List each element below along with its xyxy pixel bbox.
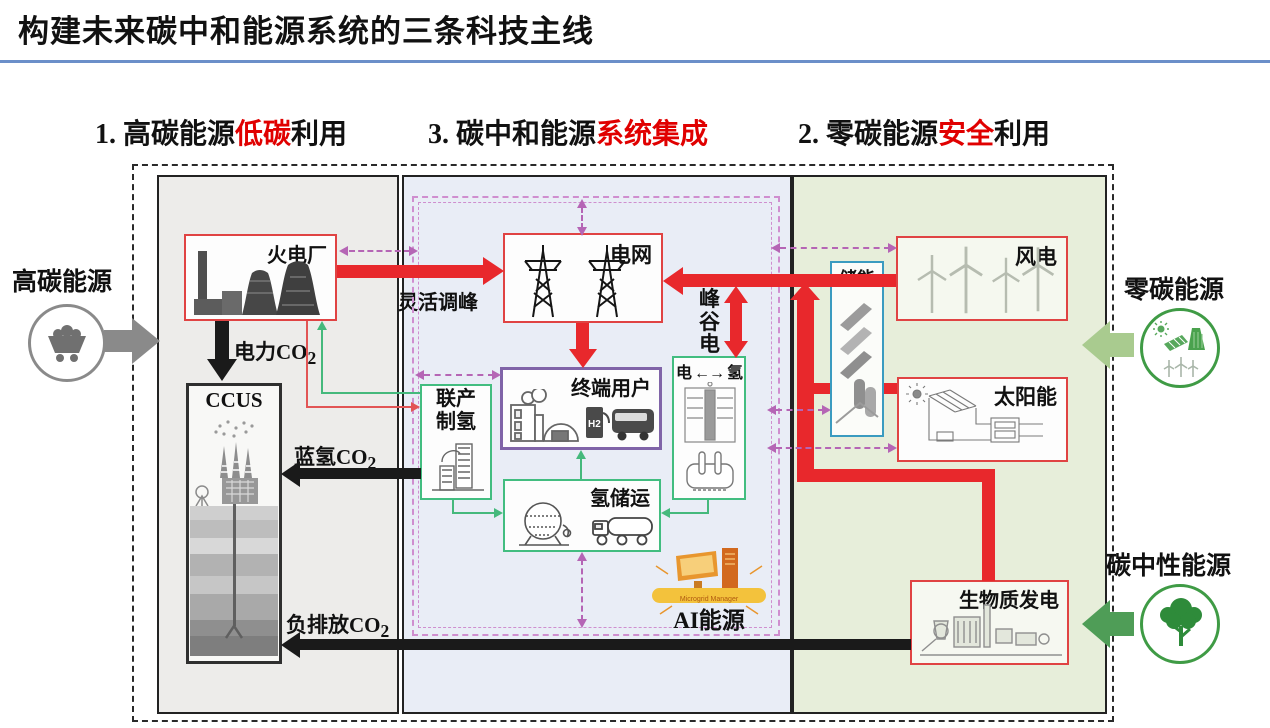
elech2-to-h2stor-line-h — [669, 512, 709, 514]
coal-cart-icon — [44, 322, 92, 364]
header-high-carbon: 1. 高碳能源低碳利用 — [95, 112, 347, 152]
h2-storage-icons — [509, 499, 659, 547]
ai-to-h2stor-dashed — [581, 559, 583, 621]
grid-to-enduser-arrow-shaft — [576, 323, 589, 351]
negative-co2-text: 负排放CO — [286, 613, 381, 637]
carbon-neutral-circle — [1140, 584, 1220, 664]
ai-to-storage-dashed — [776, 409, 824, 411]
ai-to-grid-head-down — [577, 227, 587, 236]
h2-pump-text: H2 — [588, 419, 601, 430]
biomass-riser-vertical — [982, 469, 995, 581]
biomass-box: 生物质发电 — [910, 580, 1069, 665]
title-rule — [0, 60, 1270, 63]
grid-to-enduser-arrow-head — [569, 349, 597, 368]
header-1-highlight: 低碳 — [235, 119, 291, 150]
power-co2-text: 电力CO — [234, 340, 308, 364]
elec-h2-box: 电 ←→ 氢 — [672, 356, 746, 500]
ai-to-wind-dashed — [780, 247, 890, 249]
h2stor-to-enduser-head — [576, 450, 586, 459]
blue-h2-co2-text: 蓝氢CO — [294, 445, 368, 469]
h2prod-to-h2stor-head — [494, 508, 503, 518]
page-title: 构建未来碳中和能源系统的三条科技主线 — [18, 6, 594, 51]
header-integration: 3. 碳中和能源系统集成 — [428, 112, 708, 152]
ai-to-storage-head-left — [767, 405, 776, 415]
negative-co2-arrow-shaft — [299, 639, 911, 650]
thermal-to-h2prod-head — [411, 402, 420, 412]
slide: 构建未来碳中和能源系统的三条科技主线 1. 高碳能源低碳利用 3. 碳中和能源系… — [0, 0, 1270, 728]
ai-to-solar-dashed — [776, 447, 890, 449]
ai-to-thermal-head-left — [339, 246, 348, 256]
ai-to-storage-head-right — [822, 405, 831, 415]
electrolyzer-icon — [679, 382, 741, 448]
header-3-highlight: 系统集成 — [596, 119, 708, 150]
header-1-suffix: 利用 — [291, 119, 347, 150]
ai-to-solar-head-right — [888, 443, 897, 453]
ai-to-enduser-dashed — [424, 374, 494, 376]
fuel-cell-icon — [679, 450, 741, 494]
zero-carbon-arrow-shaft — [1108, 333, 1134, 357]
solar-box: 太阳能 — [897, 377, 1068, 462]
h2prod-to-thermal-line-h — [321, 392, 421, 394]
h2stor-to-enduser-line — [580, 458, 582, 479]
h2prod-to-thermal-line-v — [321, 330, 323, 393]
zero-carbon-circle — [1140, 308, 1220, 388]
high-carbon-arrow-shaft — [104, 330, 134, 352]
thermal-to-grid-arrow-head — [483, 257, 504, 285]
power-co2-arrow-head — [207, 359, 237, 381]
zero-carbon-arrow-head — [1082, 321, 1110, 369]
biomass-plant-icon — [916, 599, 1066, 661]
h2prod-to-thermal-head — [317, 321, 327, 330]
header-zero-carbon: 2. 零碳能源安全利用 — [798, 112, 1050, 152]
h2prod-to-h2stor-line-h — [452, 512, 495, 514]
h2-storage-box: 氢储运 — [503, 479, 661, 552]
ai-to-wind-head-left — [771, 243, 780, 253]
wind-box: 风电 — [896, 236, 1068, 321]
ai-to-thermal-dashed — [349, 250, 410, 252]
renewables-to-grid-arrow-head — [663, 267, 683, 295]
power-co2-label: 电力CO2 — [234, 336, 316, 369]
ccus-label: CCUS — [205, 388, 262, 413]
peak-valley-arrow-head-up — [724, 286, 748, 303]
negative-co2-label: 负排放CO2 — [286, 609, 389, 642]
h2-production-icon — [428, 438, 488, 496]
renewables-to-grid-arrow-shaft — [681, 274, 896, 287]
renewables-bus-up-head — [790, 283, 820, 300]
grid-box: 电网 — [503, 233, 663, 323]
header-2-highlight: 安全 — [938, 119, 994, 150]
ai-to-wind-head-right — [888, 243, 897, 253]
end-user-box: 终端用户 H2 — [500, 367, 662, 450]
high-carbon-arrow-head — [132, 318, 160, 364]
power-co2-sub: 2 — [308, 348, 317, 368]
peak-valley-arrow-shaft — [730, 301, 742, 343]
ai-to-enduser-head-right — [492, 370, 501, 380]
ai-to-h2stor-head-up — [577, 552, 587, 561]
carbon-neutral-label: 碳中性能源 — [1106, 546, 1231, 582]
carbon-neutral-arrow-shaft — [1108, 612, 1134, 636]
high-carbon-circle — [28, 304, 106, 382]
ai-to-grid-dashed — [581, 207, 583, 229]
storage-icon — [834, 291, 880, 433]
ai-to-solar-head-left — [767, 443, 776, 453]
h2-production-label-line2: 制氢 — [436, 411, 476, 434]
elec-h2-label: 电 ←→ 氢 — [676, 359, 742, 383]
ccus-box: CCUS — [186, 383, 282, 664]
elech2-to-h2stor-head — [661, 508, 670, 518]
h2-production-label: 联产 制氢 — [436, 388, 476, 434]
h2-production-label-line1: 联产 — [436, 388, 476, 411]
thermal-to-grid-arrow-shaft — [337, 265, 485, 278]
biomass-bus-horizontal — [797, 469, 995, 482]
end-user-icons: H2 — [506, 389, 658, 445]
negative-co2-arrow-head — [281, 632, 300, 658]
transmission-towers-icon — [521, 243, 641, 321]
header-2-suffix: 利用 — [994, 119, 1050, 150]
header-3-text: 3. 碳中和能源 — [428, 119, 596, 150]
header-1-text: 1. 高碳能源 — [95, 119, 235, 150]
renewables-icon — [1152, 320, 1210, 378]
storage-box: 储能 — [830, 261, 884, 437]
thermal-to-h2prod-line-v — [306, 321, 308, 408]
ai-energy-group: Microgrid Manager AI能源 — [650, 548, 768, 628]
high-carbon-label: 高碳能源 — [12, 262, 112, 298]
header-2-text: 2. 零碳能源 — [798, 119, 938, 150]
blue-h2-co2-arrow-shaft — [299, 468, 421, 479]
ai-to-enduser-head-left — [415, 370, 424, 380]
carbon-neutral-arrow-head — [1082, 600, 1110, 648]
thermal-to-h2prod-line-h — [306, 406, 413, 408]
ccus-illustration-icon — [190, 416, 278, 662]
zero-carbon-label: 零碳能源 — [1124, 270, 1224, 306]
ai-energy-label: AI能源 — [673, 601, 745, 635]
blue-h2-co2-arrow-head — [281, 461, 300, 487]
thermal-plant-icon — [190, 247, 330, 317]
ai-to-thermal-head-right — [409, 246, 418, 256]
peak-valley-arrow-head-down — [724, 341, 748, 358]
renewables-bus-vertical — [797, 298, 814, 478]
ai-to-h2stor-head-down — [577, 619, 587, 628]
ai-to-grid-head-up — [577, 199, 587, 208]
thermal-plant-box: 火电厂 — [184, 234, 337, 321]
tree-icon — [1155, 596, 1207, 654]
wind-turbines-icon — [902, 241, 1062, 317]
power-co2-arrow-shaft — [215, 321, 229, 361]
solar-schematic-icon — [903, 382, 1063, 456]
h2-production-box: 联产 制氢 — [420, 384, 492, 500]
